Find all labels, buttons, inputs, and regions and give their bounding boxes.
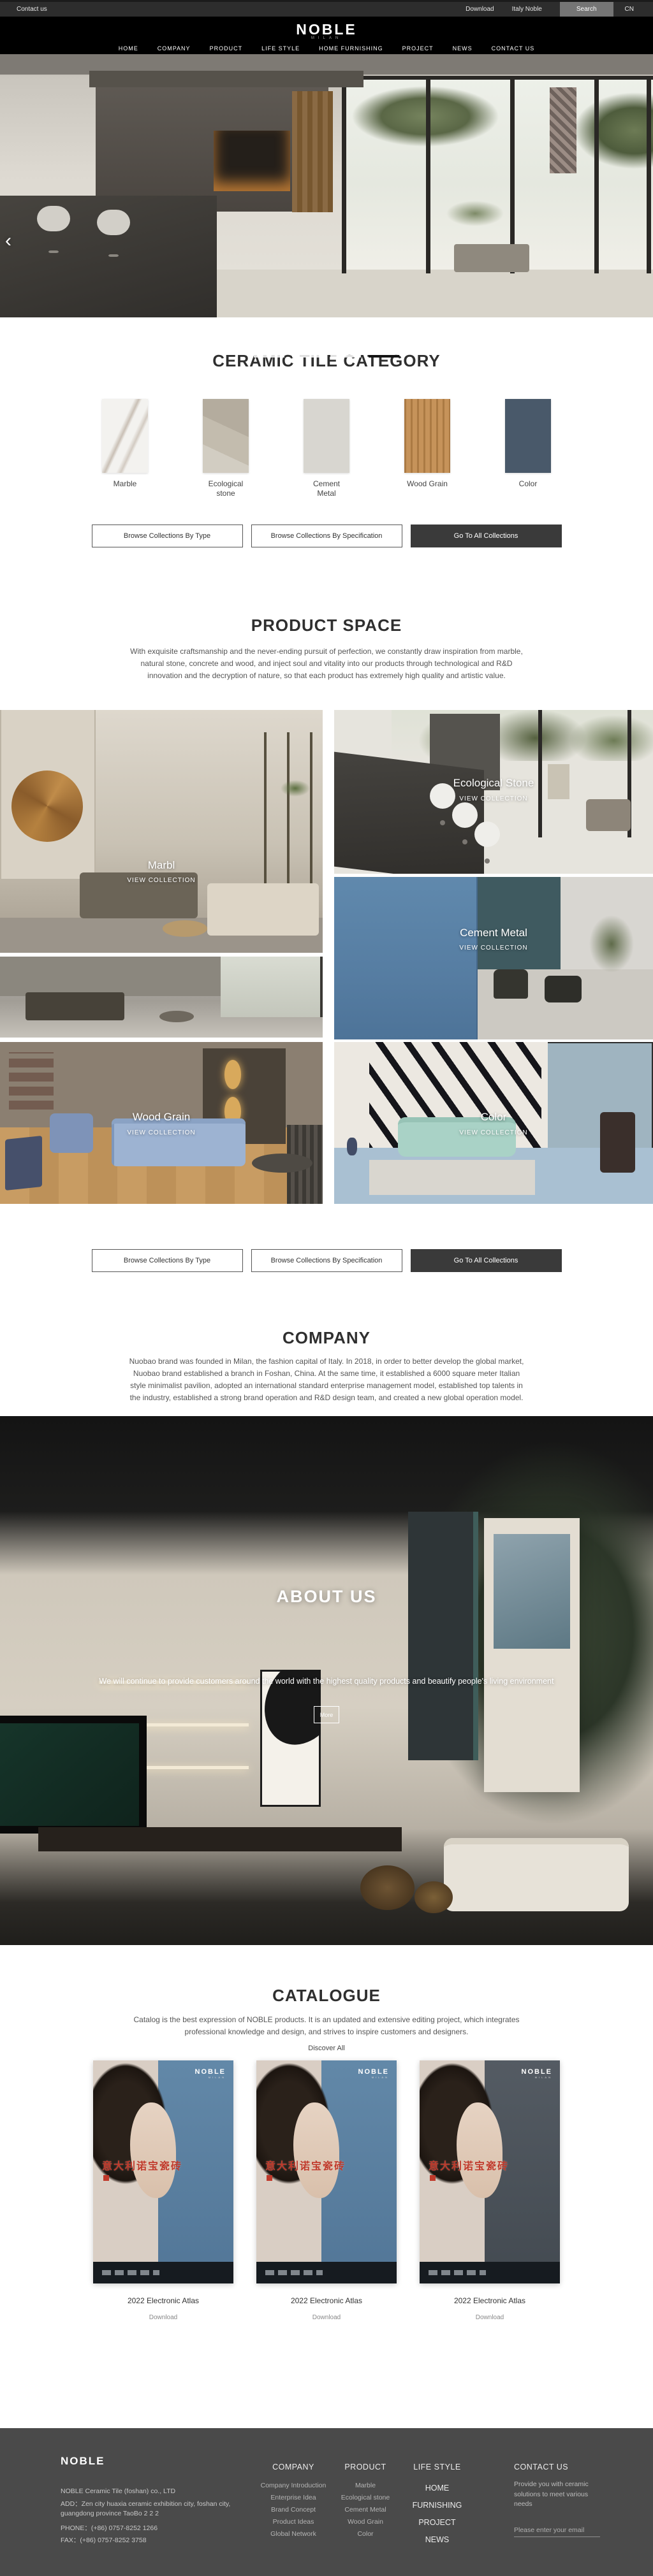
collection-buttons: Browse Collections By Type Browse Collec… (0, 525, 653, 547)
tile-name: Cement Metal (334, 927, 653, 939)
footer-phone: PHONE：(+86) 0757-8252 1266 (61, 2523, 158, 2533)
tile-cement-metal[interactable]: Cement Metal VIEW COLLECTION (334, 877, 653, 1039)
scene-plant (281, 780, 310, 797)
scene-chair (494, 969, 528, 999)
footer-link-color[interactable]: Color (327, 2528, 404, 2540)
view-collection-link[interactable]: VIEW COLLECTION (334, 795, 653, 802)
scene-wood-disc (11, 771, 83, 842)
footer-links-column: LIFE STYLE HOME FURNISHING PROJECT NEWS (400, 2463, 474, 2549)
cover-red-seal (430, 2175, 436, 2181)
hero-beam (89, 71, 363, 87)
catalogue-item: NOBLE MILAN 意大利诺宝瓷砖 2022 Electronic Atla… (420, 2060, 560, 2322)
tile-gray-room[interactable] (0, 957, 323, 1038)
about-us-section: ABOUT US We will continue to provide cus… (0, 1416, 653, 1945)
catalogue-item-name: 2022 Electronic Atlas (256, 2296, 397, 2306)
scene-sofa (26, 992, 124, 1020)
nav-news[interactable]: NEWS (453, 45, 473, 52)
scene-chair (545, 976, 582, 1002)
carousel-indicator[interactable] (292, 355, 323, 358)
cover-bottom-strip (93, 2262, 233, 2283)
hero-window-frame (342, 76, 653, 80)
scene-sofa (207, 883, 319, 936)
tile-name: Color (334, 1111, 653, 1124)
footer-link-home-furnishing[interactable]: HOME FURNISHING (400, 2480, 474, 2514)
hero-greenery (574, 92, 653, 169)
hero-bar-stool (37, 206, 70, 231)
scene-wall-art (9, 1052, 54, 1110)
company-description: Nuobao brand was founded in Milan, the f… (129, 1356, 524, 1416)
hero-window-frame (647, 76, 651, 273)
category-wood-grain[interactable]: Wood Grain (404, 399, 450, 498)
footer-product-column: PRODUCT Marble Ecological stone Cement M… (327, 2463, 404, 2540)
scene-table (252, 1154, 312, 1173)
view-collection-link[interactable]: VIEW COLLECTION (334, 1129, 653, 1136)
category-ecological-stone[interactable]: Ecological stone (203, 399, 249, 498)
hero-greenery (352, 86, 499, 147)
tile-marble[interactable]: Marbl VIEW COLLECTION (0, 710, 323, 953)
cover-red-seal (103, 2175, 109, 2181)
nav-company[interactable]: COMPANY (158, 45, 191, 52)
about-us-title: ABOUT US (0, 1587, 653, 1607)
footer-company-line: NOBLE Ceramic Tile (foshan) co., LTD (61, 2487, 175, 2495)
carousel-prev-arrow[interactable]: ‹ (5, 231, 11, 250)
footer-link-news[interactable]: NEWS (400, 2531, 474, 2549)
wood-grain-swatch (404, 399, 450, 473)
scene-rug (369, 1160, 535, 1195)
footer-contact-column: CONTACT US Provide you with ceramic solu… (514, 2463, 610, 2537)
footer-contact-title[interactable]: CONTACT US (514, 2463, 610, 2471)
category-color[interactable]: Color (505, 399, 551, 498)
ecological-stone-swatch (203, 399, 249, 473)
scene-blue-cabinet (334, 877, 478, 1039)
footer-link-wood-grain[interactable]: Wood Grain (327, 2516, 404, 2528)
cover-red-seal (267, 2175, 272, 2181)
category-cement-metal[interactable]: Cement Metal (304, 399, 349, 498)
scene-round-table (360, 1865, 415, 1910)
scene-counter (38, 1827, 402, 1851)
catalogue-section-title: CATALOGUE (0, 1986, 653, 2004)
catalogue-item-name: 2022 Electronic Atlas (93, 2296, 233, 2306)
cement-metal-swatch (304, 399, 349, 473)
browse-by-specification-button[interactable]: Browse Collections By Specification (251, 525, 402, 547)
cover-bottom-strip (256, 2262, 397, 2283)
hero-window-frame (594, 76, 599, 273)
hero-textile (550, 87, 576, 173)
cover-logo-text: NOBLE (358, 2068, 390, 2076)
cover-noble-logo: NOBLE MILAN (195, 2068, 226, 2079)
masthead: NOBLE MILAN HOME COMPANY PRODUCT LIFE ST… (0, 17, 653, 54)
hero-shrub (446, 201, 504, 226)
scene-white-sofa (444, 1838, 629, 1911)
view-collection-link[interactable]: VIEW COLLECTION (0, 1129, 323, 1136)
hero-floor (210, 270, 653, 317)
browse-by-type-button[interactable]: Browse Collections By Type (92, 1249, 243, 1272)
scene-doorway (408, 1512, 478, 1760)
scene-plant (589, 915, 634, 973)
swatch-label: Wood Grain (404, 479, 450, 489)
go-to-all-collections-button[interactable]: Go To All Collections (411, 1249, 562, 1272)
category-marble[interactable]: Marble (102, 399, 148, 498)
scene-round-table (415, 1881, 453, 1913)
about-us-description: We will continue to provide customers ar… (71, 1674, 582, 1688)
scene-teal-wall (478, 877, 561, 973)
browse-by-specification-button[interactable]: Browse Collections By Specification (251, 1249, 402, 1272)
product-space-description: With exquisite craftsmanship and the nev… (129, 646, 524, 710)
browse-by-type-button[interactable]: Browse Collections By Type (92, 525, 243, 547)
footer-fax: FAX：(+86) 0757-8252 3758 (61, 2535, 147, 2545)
tile-name: Ecological Stone (334, 777, 653, 790)
top-utility-bar: Contact us Download Italy Noble Search C… (0, 0, 653, 17)
footer-link-life-style[interactable]: LIFE STYLE (400, 2463, 474, 2471)
catalogue-covers: NOBLE MILAN 意大利诺宝瓷砖 2022 Electronic Atla… (0, 2060, 653, 2322)
download-link[interactable]: Download (312, 2313, 341, 2322)
scene-blue-sofa (112, 1118, 246, 1166)
tile-ecological-stone[interactable]: Ecological Stone VIEW COLLECTION (334, 710, 653, 874)
hero-window-frame (426, 76, 430, 273)
catalogue-item: NOBLE MILAN 意大利诺宝瓷砖 2022 Electronic Atla… (93, 2060, 233, 2322)
nav-home-furnishing[interactable]: HOME FURNISHING (319, 45, 383, 52)
cover-bottom-strip (420, 2262, 560, 2283)
newsletter-email-input[interactable] (514, 2524, 600, 2537)
footer-noble-logo: NOBLE (61, 2455, 105, 2468)
noble-logo-milan: MILAN (311, 36, 342, 41)
catalogue-item: NOBLE MILAN 意大利诺宝瓷砖 2022 Electronic Atla… (256, 2060, 397, 2322)
scene-table (159, 1011, 194, 1022)
category-swatches: Marble Ecological stone Cement Metal Woo… (0, 399, 653, 498)
scene-stool (452, 802, 478, 828)
footer-link-cement-metal[interactable]: Cement Metal (327, 2504, 404, 2516)
scene-window (221, 957, 323, 1017)
tile-color[interactable]: Color VIEW COLLECTION (334, 1042, 653, 1204)
cover-logo-sub: MILAN (195, 2076, 226, 2079)
main-nav: HOME COMPANY PRODUCT LIFE STYLE HOME FUR… (119, 45, 535, 52)
search-button[interactable]: Search (560, 2, 613, 17)
scene-tv (0, 1716, 147, 1834)
company-section-title: COMPANY (0, 1329, 653, 1347)
download-link[interactable]: Download (476, 2313, 504, 2322)
catalogue-description: Catalog is the best expression of NOBLE … (129, 2014, 524, 2044)
marble-swatch (102, 399, 148, 473)
hero-carousel: ‹ (0, 54, 653, 317)
footer-link-ecological-stone[interactable]: Ecological stone (327, 2492, 404, 2504)
language-switch-cn[interactable]: CN (625, 6, 634, 13)
download-link[interactable]: Download (149, 2313, 177, 2322)
product-space-grid: Marbl VIEW COLLECTION Wood Grain VIEW CO… (0, 710, 653, 1204)
nav-product[interactable]: PRODUCT (210, 45, 243, 52)
scene-vase (347, 1138, 357, 1155)
view-collection-link[interactable]: VIEW COLLECTION (0, 877, 323, 884)
cover-logo-sub: MILAN (358, 2076, 390, 2079)
page: Contact us Download Italy Noble Search C… (0, 0, 653, 2576)
carousel-indicator[interactable] (330, 355, 361, 358)
color-swatch (505, 399, 551, 473)
catalogue-cover[interactable]: NOBLE MILAN 意大利诺宝瓷砖 (93, 2060, 233, 2283)
carousel-indicator-active[interactable] (369, 355, 399, 358)
swatch-label: Marble (102, 479, 148, 489)
cover-title-cn: 意大利诺宝瓷砖 (429, 2157, 509, 2173)
footer: NOBLE NOBLE Ceramic Tile (foshan) co., L… (0, 2428, 653, 2576)
cover-logo-sub: MILAN (522, 2076, 553, 2079)
scene-bench (586, 799, 631, 831)
footer-link-marble[interactable]: Marble (327, 2480, 404, 2492)
go-to-all-collections-button[interactable]: Go To All Collections (411, 525, 562, 547)
tile-wood-grain[interactable]: Wood Grain VIEW COLLECTION (0, 1042, 323, 1204)
cover-noble-logo: NOBLE MILAN (522, 2068, 553, 2079)
hero-bench (454, 244, 529, 272)
cover-title-cn: 意大利诺宝瓷砖 (265, 2157, 346, 2173)
nav-project[interactable]: PROJECT (402, 45, 434, 52)
tile-name: Wood Grain (0, 1111, 323, 1124)
about-us-more-button[interactable]: More (314, 1706, 339, 1723)
nav-contact-us[interactable]: CONTACT US (492, 45, 535, 52)
footer-address: ADD：Zen city huaxia ceramic exhibition c… (61, 2500, 252, 2519)
scene-table (163, 920, 207, 937)
scene-chair (5, 1136, 42, 1190)
catalogue-cover[interactable]: NOBLE MILAN 意大利诺宝瓷砖 (256, 2060, 397, 2283)
cover-logo-text: NOBLE (195, 2068, 226, 2076)
footer-link-project[interactable]: PROJECT (400, 2514, 474, 2531)
hero-wood-panel (292, 91, 333, 212)
scene-stool (474, 821, 500, 847)
cover-title-cn: 意大利诺宝瓷砖 (102, 2157, 182, 2173)
cover-noble-logo: NOBLE MILAN (358, 2068, 390, 2079)
product-space-title: PRODUCT SPACE (0, 616, 653, 634)
view-collection-link[interactable]: VIEW COLLECTION (334, 944, 653, 952)
hero-fireplace (214, 131, 290, 191)
swatch-label: Color (505, 479, 551, 489)
catalogue-item-name: 2022 Electronic Atlas (420, 2296, 560, 2306)
hero-image: ‹ (0, 54, 653, 317)
discover-all-link[interactable]: Discover All (0, 2044, 653, 2053)
hero-bar-stool (97, 210, 130, 235)
italy-noble-link[interactable]: Italy Noble (512, 6, 542, 13)
carousel-indicators (0, 355, 653, 358)
hero-window-frame (342, 76, 346, 273)
collection-buttons: Browse Collections By Type Browse Collec… (0, 1249, 653, 1272)
footer-product-title[interactable]: PRODUCT (327, 2463, 404, 2471)
nav-home[interactable]: HOME (119, 45, 138, 52)
scene-window-frame (538, 710, 542, 837)
scene-wall-art (260, 1670, 321, 1807)
carousel-indicator[interactable] (254, 355, 284, 358)
nav-life-style[interactable]: LIFE STYLE (261, 45, 300, 52)
download-link[interactable]: Download (466, 6, 494, 13)
tile-name: Marbl (0, 859, 323, 872)
contact-us-link[interactable]: Contact us (17, 6, 47, 13)
cover-logo-text: NOBLE (522, 2068, 553, 2076)
catalogue-cover[interactable]: NOBLE MILAN 意大利诺宝瓷砖 (420, 2060, 560, 2283)
swatch-label: Cement Metal (304, 479, 349, 498)
scene-lit-mirror (224, 1060, 241, 1089)
swatch-label: Ecological stone (203, 479, 249, 498)
footer-contact-text: Provide you with ceramic solutions to me… (514, 2480, 603, 2510)
noble-logo[interactable]: NOBLE (296, 22, 357, 36)
